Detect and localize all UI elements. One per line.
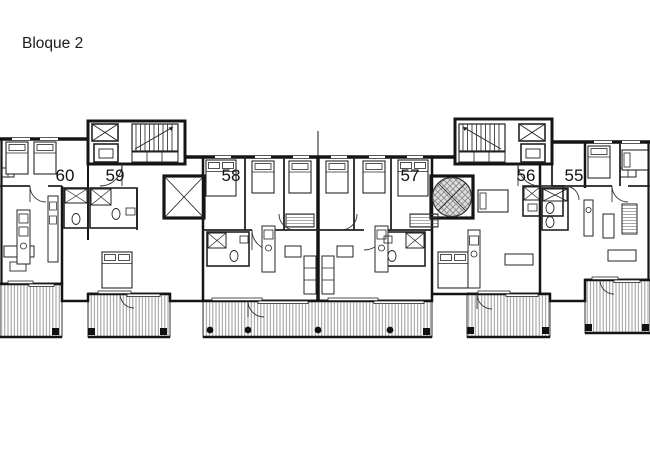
page-title: Bloque 2 (22, 35, 83, 52)
stair-core-left (88, 121, 185, 164)
terrace-unit-60 (0, 283, 62, 337)
unit-number-label: 56 (517, 166, 536, 185)
unit-number-label: 58 (222, 166, 241, 185)
elevator-icon (521, 144, 545, 162)
patio-square (164, 176, 204, 218)
terrace-unit-55 (585, 279, 650, 333)
terrace-unit-59 (88, 293, 170, 337)
terrace-units-58-57 (203, 300, 432, 337)
floor-plan-svg: Bloque 2 60 59 58 57 56 55 (0, 0, 650, 450)
unit-number-label: 59 (106, 166, 125, 185)
elevator-icon (92, 124, 118, 141)
stair-core-right (455, 119, 552, 164)
terrace-unit-56 (467, 293, 550, 337)
stairs-icon (132, 124, 178, 162)
stairs-icon (459, 124, 505, 162)
elevator-icon (94, 144, 118, 162)
elevator-icon (519, 124, 545, 141)
floor-plan-page: Bloque 2 60 59 58 57 56 55 (0, 0, 650, 450)
patio-round (431, 176, 473, 218)
unit-number-label: 60 (56, 166, 75, 185)
unit-number-label: 57 (401, 166, 420, 185)
unit-number-label: 55 (565, 166, 584, 185)
